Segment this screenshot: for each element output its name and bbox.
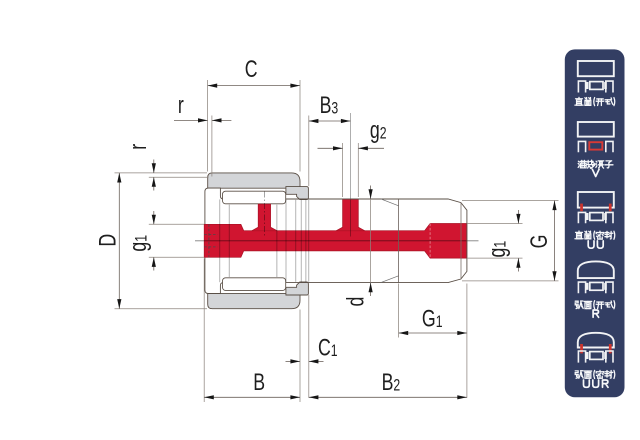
svg-text:r: r [124, 144, 151, 150]
svg-text:C: C [245, 55, 258, 82]
svg-text:G: G [525, 235, 552, 249]
svg-text:B: B [253, 368, 265, 395]
svg-text:D: D [94, 234, 121, 247]
svg-text:d: d [342, 297, 369, 307]
svg-text:r: r [178, 91, 184, 118]
